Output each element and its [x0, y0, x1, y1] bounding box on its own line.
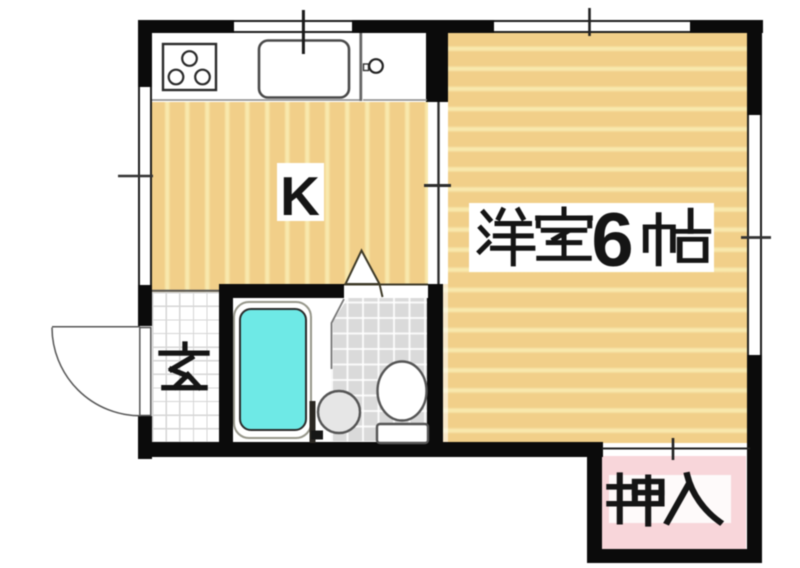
- svg-text:K: K: [280, 165, 320, 227]
- svg-text:6: 6: [591, 198, 633, 283]
